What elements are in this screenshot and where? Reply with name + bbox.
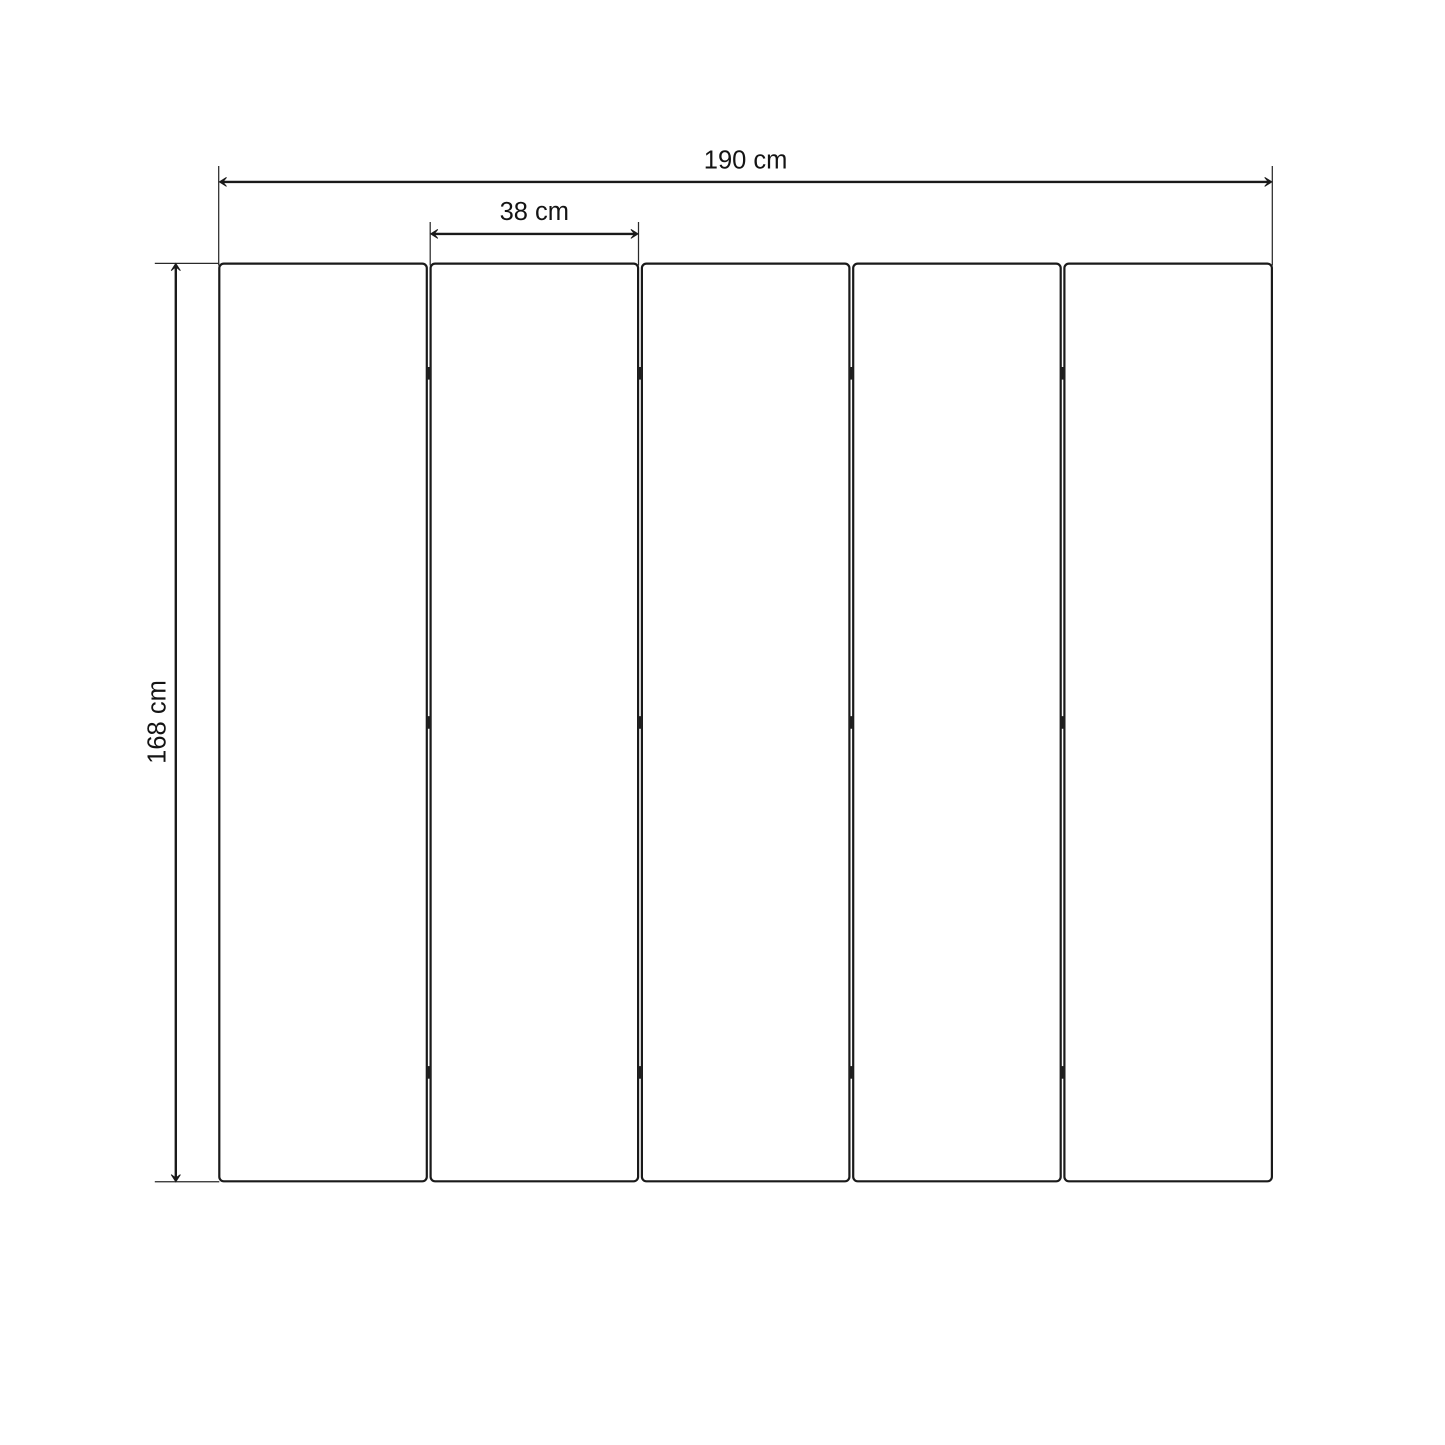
svg-text:190 cm: 190 cm bbox=[704, 147, 788, 175]
svg-text:168 cm: 168 cm bbox=[143, 680, 171, 764]
svg-text:38 cm: 38 cm bbox=[500, 198, 569, 226]
